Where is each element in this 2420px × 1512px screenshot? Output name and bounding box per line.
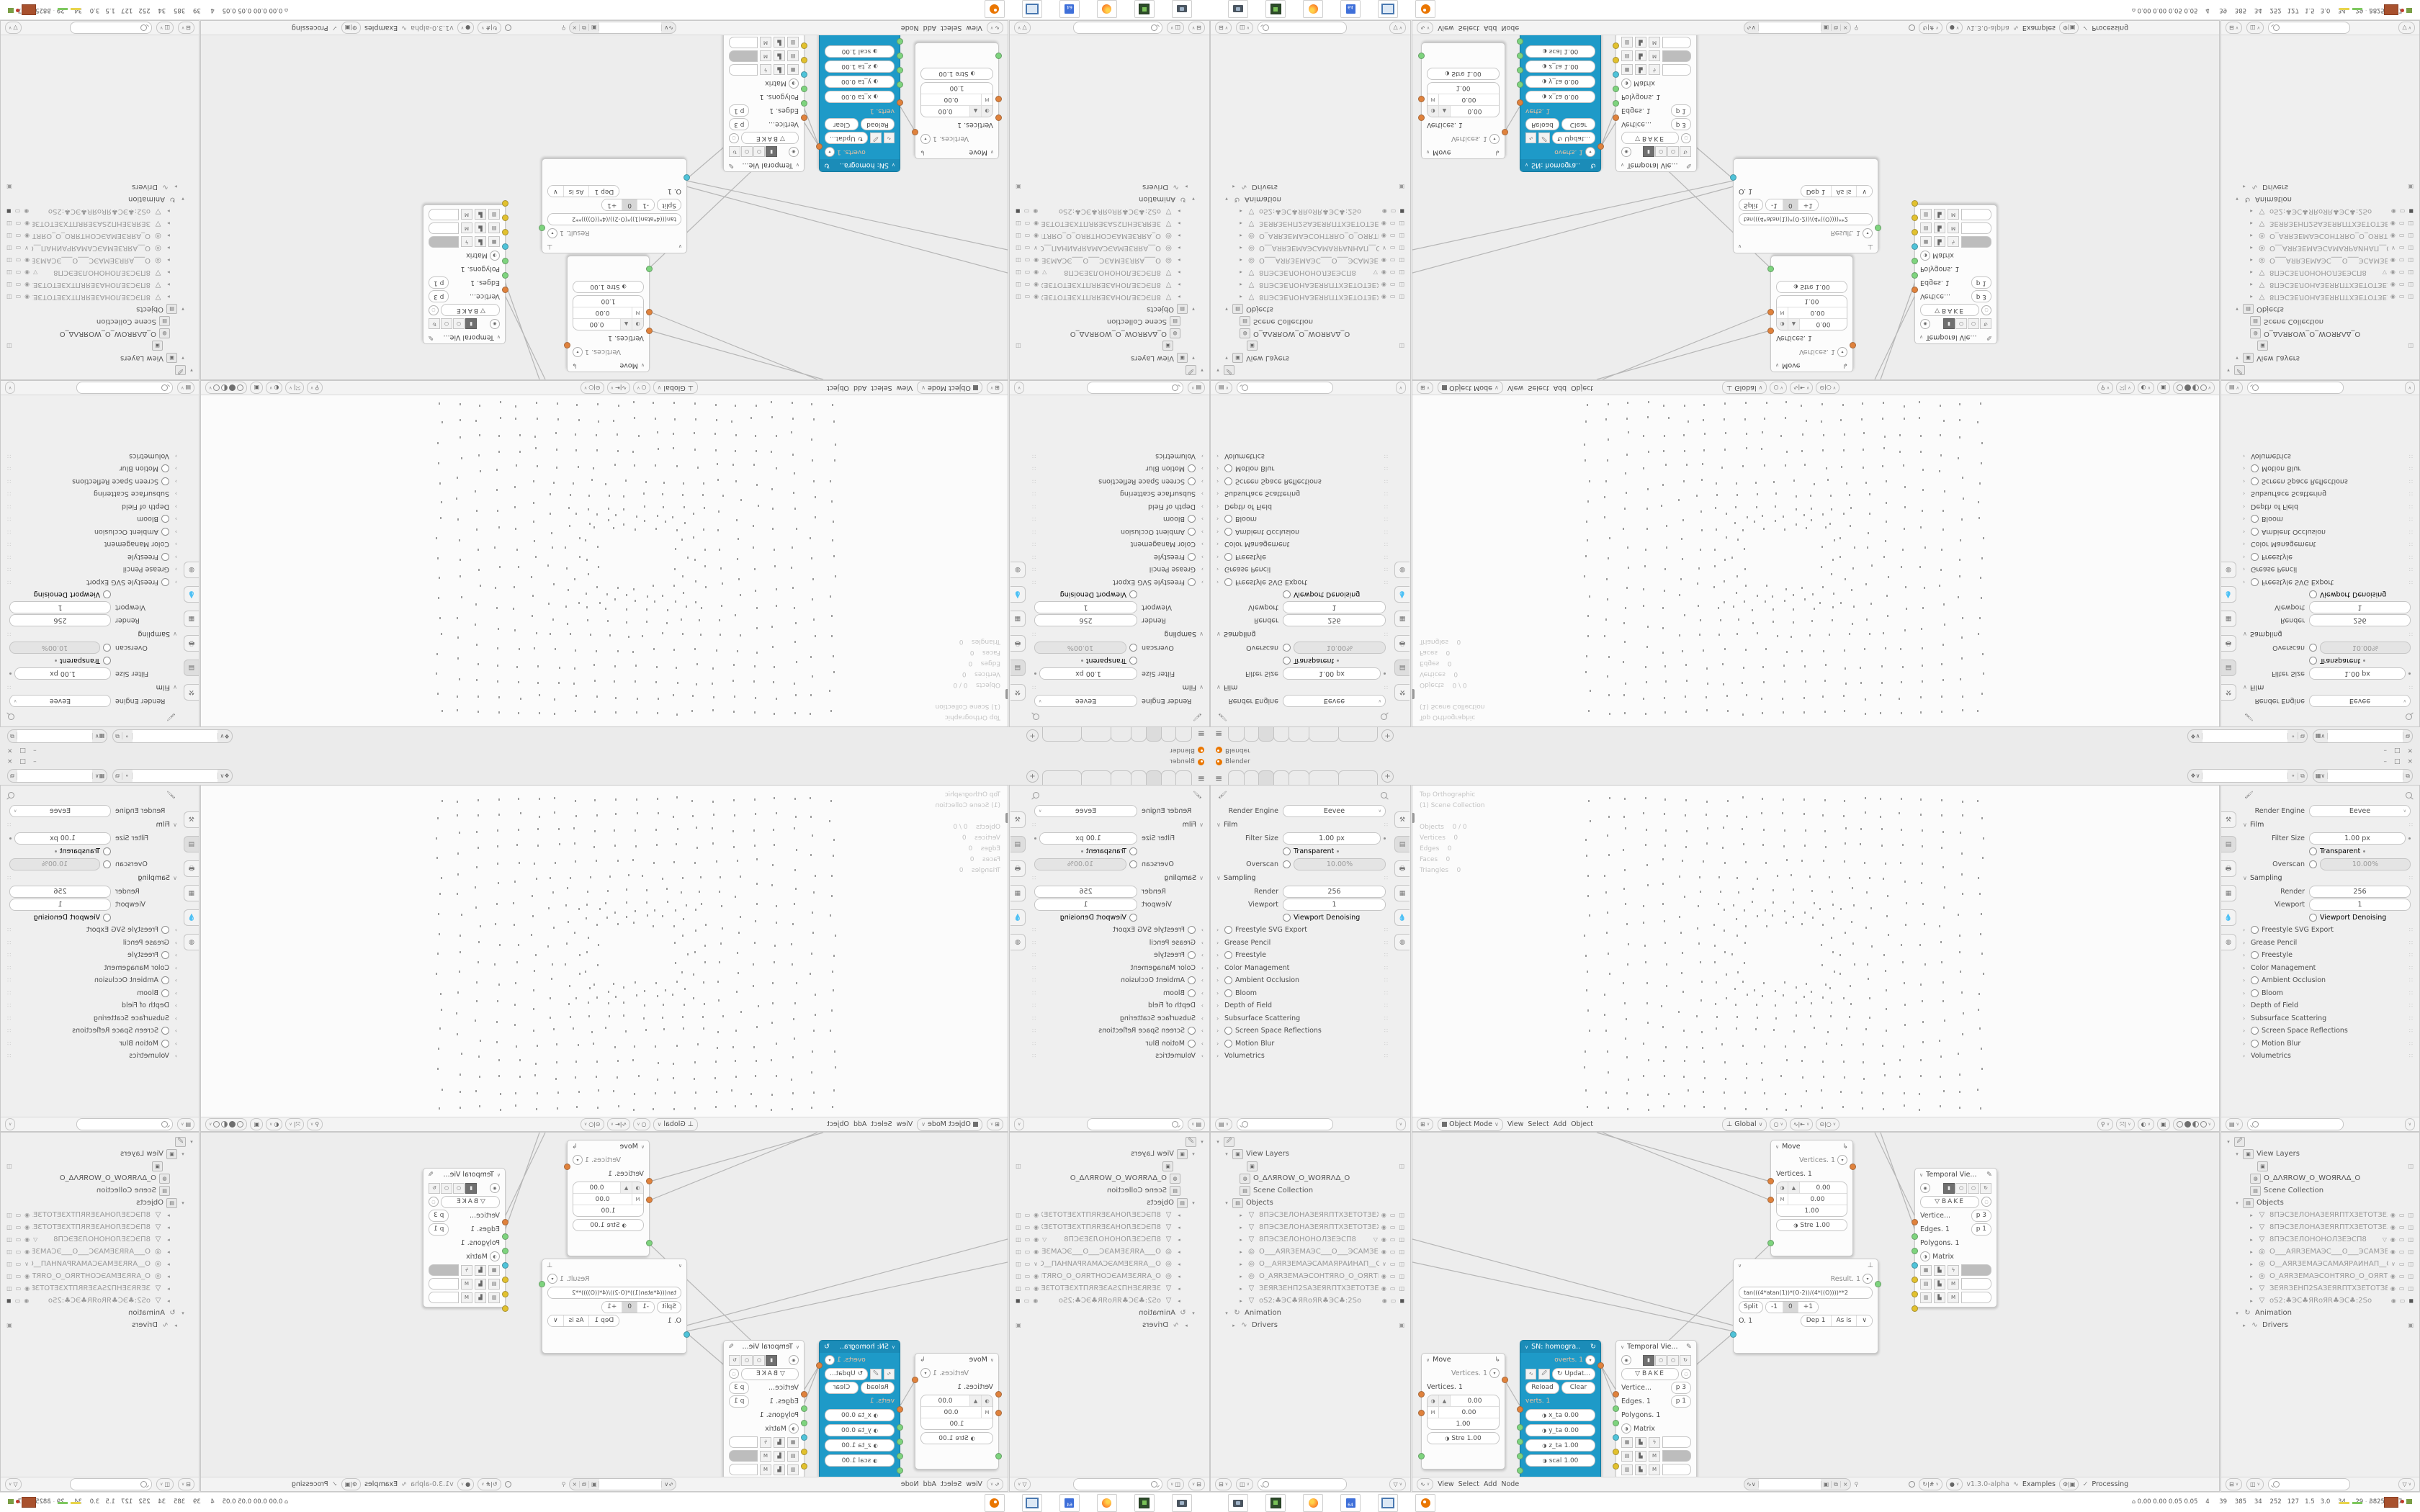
drivers-icon[interactable]: ▣ [6,1322,12,1328]
outliner-object[interactable]: ▸◎О___АЯRЗЕМАЭС___О___ЭСАМЗЕ◉▭◫ [1011,254,1206,266]
hide-icon[interactable]: ◉ [1034,1224,1039,1230]
outliner-collection[interactable]: ◍O_ΔΛЯROW_O_WOЯRΛΔ_O [2224,328,2418,340]
hide-icon[interactable]: ◉ [2390,294,2396,300]
collapsed-panel-freestyle[interactable]: ›Freestyle∷ [1,949,183,962]
outliner-drivers[interactable]: ▸∿Drivers▣ [1011,181,1206,193]
checkbox[interactable] [161,951,169,959]
value-field[interactable]: 10.00% [2320,858,2411,870]
rendered-shading-icon[interactable] [2200,1121,2207,1128]
checkbox[interactable] [1224,976,1232,984]
outliner-animation[interactable]: ▾↻Animation [2224,1307,2418,1319]
search-input[interactable] [2247,382,2344,394]
node-sn-script[interactable]: ∨SN: homogra..↻ overts. 1▾ ∿ 🖉 ↻ Updat..… [819,1340,900,1482]
disable-viewport-icon[interactable]: ▭ [16,294,22,300]
socket-in-matrix[interactable] [1613,71,1619,78]
attribute-field[interactable] [429,1264,459,1276]
snap-button[interactable]: ∿|⇤∨ [607,382,631,394]
shading-mode-group[interactable]: ∨ [205,1118,247,1130]
menu-node[interactable]: Node [901,1480,919,1488]
workspace-tab-2[interactable] [1244,727,1259,742]
outliner-object[interactable]: ▸▽8ПЭСЗЕЛОНАЗЕЯRПТХЗЕТОТЗЕХ1◉▭◫ [2224,1209,2418,1221]
taskbar-app-blender[interactable] [1415,1494,1435,1512]
render-engine-select[interactable]: Eevee∨ [1034,696,1137,708]
properties-tab-4[interactable]: 💧 [2221,586,2236,603]
display-toggle-icon[interactable]: ○ [753,1355,765,1366]
render-engine-select[interactable]: Eevee∨ [1283,696,1386,708]
checkbox[interactable] [1188,951,1196,959]
workspace-tab-2[interactable] [1161,727,1176,742]
node-expression[interactable]: ∨⊥ Result. 1▾ tan(((4*atan(1))*(O-2))/(4… [1733,1259,1878,1354]
properties-tab-4[interactable]: 💧 [184,586,199,603]
tree-name-field[interactable] [599,1479,661,1490]
attribute-field[interactable] [429,222,459,234]
outliner-object[interactable]: ▸▽8ПЭСЗЕЛОНОНОЛЗЕЭСП8▽◉▭◫ [1214,266,1409,279]
outliner-object[interactable]: ▸◎О_АЯRЗЕМАЭСОНТЯRО_О_ОЯRТНС◉▭◫ [2,230,196,242]
properties-tab-2[interactable]: 🖶 [1394,860,1410,877]
editor-type-button[interactable]: ▤∨ [177,382,194,394]
socket-in-polygons[interactable] [502,258,508,264]
value-field[interactable]: 1 [1034,602,1137,614]
viewport-3d[interactable]: Top Orthographic (1) Scene Collection Ob… [200,785,1008,1132]
collapsed-panel-depth-of-field[interactable]: ›Depth of Field∷ [1,999,183,1012]
disable-render-icon[interactable]: ◫ [6,1273,12,1279]
bake-button[interactable]: ▽ BAKE [441,305,500,317]
disable-viewport-icon[interactable]: ▭ [2399,282,2405,288]
split-button[interactable]: Split [657,199,681,212]
disable-render-icon[interactable]: ◫ [1016,1261,1021,1267]
value-field[interactable]: 1.00 px [1283,832,1381,845]
outliner-object[interactable]: ▸▽ЗЕЯRЗЕНП2SАЗЕЯRПТХЗЕТОТЗЕ)◉▭◫ [1214,217,1409,230]
outliner-object[interactable]: ▸▽8ПЭСЗЕЛОНАЗЕЯRПТХЗЕТОТЗЕХ)◉▭◫ [1214,1221,1409,1233]
value-field[interactable]: 256 [2309,886,2411,898]
collapsed-panel-screen-space-reflections[interactable]: ›Screen Space Reflections∷ [1,1025,183,1038]
section-header[interactable]: ∨ Sampling∷ [2237,870,2419,885]
workspace-tab-7[interactable] [1042,727,1082,742]
offset-segment[interactable]: -10+1 [601,1301,655,1313]
socket-in-strength[interactable] [1418,53,1425,59]
render-engine-select[interactable]: Eevee∨ [9,805,111,817]
outliner-collection[interactable]: ◍O_ΔΛЯROW_O_WOЯRΛΔ_O [1011,328,1206,340]
collapsed-panel-freestyle[interactable]: ›Freestyle∷ [1211,551,1394,564]
value-field[interactable]: 256 [9,615,111,627]
outliner-object[interactable]: ▸◎О_АЯRЗЕМАЭСОНТЯRО_О_ОЯRТНС◉▭◫ [2224,1270,2418,1282]
search-input[interactable] [2247,1118,2344,1130]
render-camera-icon[interactable]: ◫ [6,1163,12,1169]
outliner-root-row[interactable]: ▾🖉 [1214,364,1409,377]
render-camera-icon[interactable]: ◫ [2408,343,2414,349]
properties-tab-3[interactable]: ▦ [184,611,199,627]
workspace-tab-3[interactable] [1258,770,1274,785]
outliner-animation[interactable]: ▾↻Animation [2,1307,196,1319]
display-toggle-icon[interactable]: ▮ [766,1355,777,1366]
viewport-3d[interactable]: Top Orthographic (1) Scene Collection Ob… [200,380,1008,727]
disable-render-icon[interactable]: ◫ [2408,282,2414,288]
expand-icon[interactable]: ∨ [24,245,29,251]
disable-viewport-icon[interactable]: ▭ [16,282,22,288]
attribute-field[interactable] [1961,1264,1991,1276]
hide-icon[interactable]: ◉ [1381,1248,1386,1255]
workspace-tab-3[interactable] [1258,727,1274,742]
display-toggle-icon[interactable]: ○ [1667,1355,1679,1366]
properties-tab-2[interactable]: 🖶 [184,635,199,652]
disable-render-icon[interactable]: ◫ [1016,1236,1021,1243]
taskbar-app-screenshot-tool[interactable] [1228,0,1248,18]
collapsed-panel-grease-pencil[interactable]: ›Grease Pencil∷ [1211,937,1394,950]
outliner-object[interactable]: ▸▽оS2:♣ЭС♣ЯRоЯR♣ЭС♣:2Sо◉▭◼ [2224,1295,2418,1307]
attribute-field[interactable] [429,236,459,248]
value-field[interactable]: 10.00% [9,858,100,870]
display-mode-button[interactable]: ⊟∨ [1188,22,1205,34]
checkbox[interactable] [2251,553,2259,561]
hide-icon[interactable]: ◉ [24,1212,30,1218]
socket-in-verts[interactable] [897,99,903,106]
socket-in-attr2[interactable] [801,1463,807,1470]
disable-render-icon[interactable]: ◫ [1399,1248,1404,1255]
shield-icon[interactable]: ▣ [589,24,600,31]
socket-in-yta[interactable] [1517,1439,1523,1445]
settings-button[interactable]: ⚙|▣ [341,1478,361,1490]
workspace-tab-3[interactable] [1146,727,1162,742]
disable-render-icon[interactable]: ◫ [2408,1212,2414,1218]
collapsed-panel-color-management[interactable]: ›Color Management∷ [1,538,183,551]
collapsed-panel-ambient-occlusion[interactable]: ›Ambient Occlusion∷ [1026,526,1209,539]
outliner-view-layer-item[interactable]: ▣◫ [1214,1160,1409,1172]
disable-viewport-icon[interactable]: ▭ [16,269,22,276]
hide-icon[interactable]: ◉ [24,257,30,264]
socket-in-strength[interactable] [1767,1240,1774,1246]
outliner-view-layers[interactable]: ▾▣View Layers [1011,352,1206,364]
value-field[interactable]: 1 [2309,602,2411,614]
taskbar-app-floppy-64[interactable]: 64 [1059,0,1080,18]
snap-target-button[interactable]: ○∨ [633,382,650,394]
socket-in-verts[interactable] [1517,99,1523,106]
section-header[interactable]: ∨ Film∷ [1211,817,1394,832]
outliner-drivers[interactable]: ▸∿Drivers▣ [2,181,196,193]
collapsed-panel-ambient-occlusion[interactable]: ›Ambient Occlusion∷ [1,526,183,539]
pin-circle-icon[interactable] [505,24,511,31]
mesh-data-icon[interactable]: ▽ [1373,1236,1378,1243]
disable-render-icon[interactable]: ◫ [2408,294,2414,300]
section-header[interactable]: ∨ Sampling∷ [1,870,183,885]
view-layer-name-field[interactable] [17,770,92,782]
collapsed-panel-depth-of-field[interactable]: ›Depth of Field∷ [1211,500,1394,513]
socket-in-matrix[interactable] [1613,1434,1619,1441]
sn-param-scal[interactable]: ◑scal1.00 [825,1454,895,1467]
sn-param-z_ta[interactable]: ◑z_ta1.00 [825,60,895,73]
socket-out-result[interactable] [539,225,545,231]
taskbar-app-blender[interactable] [985,1494,1005,1512]
minimize-button[interactable]: – [2383,758,2387,765]
collapsed-panel-freestyle-svg-export[interactable]: ›Freestyle SVG Export∷ [1026,924,1209,937]
outliner-object[interactable]: ▸▽8ПЭСЗЕЛОНАЗЕЯRПТХЗЕТОТЗЕХ1◉▭◫ [2224,291,2418,303]
socket-out-vertices[interactable] [912,1377,918,1383]
outliner-object[interactable]: ▸◎О__АЯRЗЕМАЭСАМАЯРАИНАП__О_∨▭◫ [1214,242,1409,254]
outliner-object[interactable]: ▸▽8ПЭСЗЕЛОНАЗЕЯRПТХЗЕТОТЗЕХ)◉▭◫ [1214,279,1409,291]
socket-in-attr2[interactable] [1613,1463,1619,1470]
wireframe-shading-icon[interactable] [237,384,243,391]
outliner-drivers[interactable]: ▸∿Drivers▣ [1011,1319,1206,1331]
drivers-icon[interactable]: ▣ [1016,184,1021,190]
socket-in-attr1[interactable] [1912,1277,1918,1283]
checkbox[interactable] [1224,1040,1232,1048]
scene-selector[interactable]: ❖∨ ⚬ ⧉ [112,729,232,743]
collapsed-panel-freestyle-svg-export[interactable]: ›Freestyle SVG Export∷ [1,924,183,937]
outliner-object[interactable]: ▸◎О___АЯRЗЕМАЭС___О___ЭСАМЗЕ◉▭◫ [1011,1246,1206,1258]
proportional-edit-button[interactable]: ⊙|○∨ [581,382,604,394]
disable-render-icon[interactable]: ◫ [2408,1261,2414,1267]
socket-in-zta[interactable] [897,1453,903,1459]
value-field[interactable]: 1.00 px [1283,668,1381,680]
view-layer-selector[interactable]: ▦∨ ⧉ [2313,769,2413,783]
node-move[interactable]: ∨Move↳ Vertices. 1▾ Vertices. 1 ◑▲0.00 M… [1421,1353,1505,1470]
attribute-field[interactable] [729,37,758,48]
socket-in-o[interactable] [684,174,690,181]
checkbox[interactable] [103,914,111,922]
hide-icon[interactable]: ◉ [1381,1285,1386,1292]
hide-icon[interactable]: ◉ [2390,1212,2396,1218]
preview-icon[interactable]: ◉ [490,1183,500,1193]
shading-mode-group[interactable]: ∨ [205,382,247,394]
bake-button[interactable]: ▽ BAKE [1621,132,1679,145]
disable-render-icon[interactable]: ◫ [1016,233,1021,239]
options-button[interactable]: ∨ [1014,1118,1024,1130]
node-tree-selector[interactable]: ∿∨ ▣ ⧉ × [569,22,676,34]
offset-segment[interactable]: -10+1 [1765,199,1819,212]
checkbox[interactable] [1188,477,1196,485]
hide-icon[interactable]: ◉ [24,1297,29,1304]
editor-type-button[interactable]: ∿∨ [1417,1478,1433,1490]
menu-icon[interactable]: ≡ [1215,773,1222,783]
menu-object[interactable]: Object [1571,1120,1593,1128]
search-input[interactable] [1073,1478,1162,1490]
socket-in-vertices[interactable] [1613,114,1619,121]
value-field[interactable]: 1.00 px [14,668,111,680]
attribute-field[interactable] [429,1278,459,1290]
outliner-collection[interactable]: ◍O_ΔΛЯROW_O_WOЯRΛΔ_O [1214,1172,1409,1184]
disable-render-icon[interactable]: ◫ [6,1285,12,1292]
menu-add[interactable]: Add [853,1120,866,1128]
bake-button[interactable]: ▽ BAKE [1621,1368,1679,1380]
taskbar-app-camera-app[interactable] [1134,0,1155,18]
mesh-data-icon[interactable]: ▽ [33,1236,37,1243]
checkbox[interactable] [1283,860,1291,868]
render-camera-icon[interactable]: ◫ [1399,1163,1404,1169]
disable-render-icon[interactable]: ◫ [1399,257,1404,264]
outliner-object[interactable]: ▸▽оS2:♣ЭС♣ЯRоЯR♣ЭС♣:2Sо◉▭◼ [2,1295,196,1307]
disable-render-icon[interactable]: ◫ [1016,282,1021,288]
outliner-object[interactable]: ▸▽8ПЭСЗЕЛОНАЗЕЯRПТХЗЕТОТЗЕХ1◉▭◫ [2,1209,196,1221]
drivers-icon[interactable]: ▣ [1399,1322,1404,1328]
outliner-animation[interactable]: ▾↻Animation [1214,1307,1409,1319]
disable-render-icon[interactable]: ◫ [2408,245,2414,251]
mesh-data-icon[interactable]: ▽ [1373,269,1378,276]
menu-icon[interactable]: ≡ [1198,773,1205,783]
checkbox[interactable] [2251,578,2259,586]
workspace-tab-7[interactable] [1338,770,1378,785]
hide-icon[interactable]: ◉ [1034,1273,1039,1279]
disable-viewport-icon[interactable]: ▭ [1025,1261,1031,1267]
checkbox[interactable] [2251,976,2259,984]
disable-viewport-icon[interactable]: ▭ [1025,257,1031,264]
workspace-tab-2[interactable] [1244,770,1259,785]
disable-render-icon[interactable]: ◼ [1016,208,1021,215]
value-field[interactable]: 256 [1034,886,1137,898]
properties-tab-1[interactable]: ▤ [1010,836,1026,852]
disable-render-icon[interactable]: ◫ [6,1261,12,1267]
taskbar-app-firefox[interactable] [1303,1494,1323,1512]
socket-in-attr1[interactable] [801,57,807,63]
disable-render-icon[interactable]: ◫ [6,1212,12,1218]
checkbox[interactable] [1188,976,1196,984]
node-temporal-viewer[interactable]: ∨Temporal Vie...✎◉▮○○↻▽ BAKE◌Vertice...p… [1914,1168,1997,1308]
collapsed-panel-subsurface-scattering[interactable]: ›Subsurface Scattering∷ [1026,1012,1209,1025]
taskbar-app-firefox[interactable] [1097,0,1117,18]
display-toggle-icon[interactable]: ▮ [1943,1183,1955,1194]
hide-icon[interactable]: ◉ [1381,220,1386,227]
display-mode-button[interactable]: ⊟∨ [2226,1478,2242,1490]
disable-render-icon[interactable]: ◫ [2408,233,2414,239]
restore-button[interactable]: □ [20,758,27,765]
outliner-object[interactable]: ▸▽оS2:♣ЭС♣ЯRоЯR♣ЭС♣:2Sо◉▭◼ [1214,205,1409,217]
expand-icon[interactable]: ∨ [1034,1261,1038,1267]
socket-in-polygons[interactable] [1613,1420,1619,1426]
hide-icon[interactable]: ◉ [24,1236,30,1243]
outliner-object[interactable]: ▸▽8ПЭСЗЕЛОНАЗЕЯRПТХЗЕТОТЗЕХ1◉▭◫ [1214,291,1409,303]
socket-in-scal[interactable] [897,38,903,45]
checkbox[interactable] [1224,578,1232,586]
menu-select[interactable]: Select [1458,1480,1479,1488]
outliner-drivers[interactable]: ▸∿Drivers▣ [2,1319,196,1331]
checkbox[interactable] [1224,528,1232,536]
filter-id-button[interactable]: ◫∨ [1236,22,1253,34]
value-field[interactable]: 256 [1283,615,1386,627]
profiling-button[interactable]: ●∨ [457,1478,474,1490]
transform-orientation-select[interactable]: ⊥ Global∨ [1722,382,1767,395]
workspace-tab-1[interactable] [1175,727,1192,742]
socket-in-matrix[interactable] [1912,243,1918,250]
hide-icon[interactable]: ◉ [1381,269,1386,276]
disable-viewport-icon[interactable]: ▭ [1390,269,1396,276]
disable-viewport-icon[interactable]: ▭ [2399,233,2405,239]
collapsed-panel-subsurface-scattering[interactable]: ›Subsurface Scattering∷ [1211,487,1394,500]
properties-tab-0[interactable]: ⚒ [1394,811,1410,828]
outliner-object[interactable]: ▸◎О_АЯRЗЕМАЭСОНТЯRО_О_ОЯRТНС◉▭◫ [1011,1270,1206,1282]
checkbox[interactable] [2309,914,2317,922]
sn-param-x_ta[interactable]: ◑x_ta0.00 [825,91,895,103]
sn-param-z_ta[interactable]: ◑z_ta1.00 [1525,60,1595,73]
outliner-scene-collection[interactable]: ▤Scene Collection [2224,315,2418,328]
filter-button[interactable]: ▽∨ [2398,22,2415,34]
outliner-object[interactable]: ▸▽8ПЭСЗЕЛОНАЗЕЯRПТХЗЕТОТЗЕХ)◉▭◫ [2,279,196,291]
outliner-view-layers[interactable]: ▾▣View Layers [2224,352,2418,364]
outliner-root-row[interactable]: ▾🖉 [2,1135,196,1148]
render-engine-select[interactable]: Eevee∨ [1034,805,1137,817]
hide-icon[interactable]: ◉ [24,282,30,288]
minimize-button[interactable]: – [33,758,37,765]
disable-viewport-icon[interactable]: ▭ [1025,1248,1031,1255]
shield-icon[interactable]: ▣ [589,1481,600,1488]
collapsed-panel-color-management[interactable]: ›Color Management∷ [1211,538,1394,551]
menu-view[interactable]: View [966,1480,982,1488]
socket-in-scal[interactable] [1517,38,1523,45]
mesh-data-icon[interactable]: ▽ [2383,269,2387,276]
collapsed-panel-motion-blur[interactable]: ›Motion Blur∷ [1026,1038,1209,1050]
disable-viewport-icon[interactable]: ▭ [16,1273,22,1279]
outliner-object[interactable]: ▸▽ЗЕЯRЗЕНП2SАЗЕЯRПТХЗЕТОТЗЕ)◉▭◫ [2,217,196,230]
outliner-object[interactable]: ▸▽8ПЭСЗЕЛОНАЗЕЯRПТХЗЕТОТЗЕХ1◉▭◫ [1011,1209,1206,1221]
checkbox[interactable] [161,989,169,997]
depth-mode-segment[interactable]: Dep 1As is∨ [547,186,619,198]
expand-icon[interactable]: ∨ [1034,245,1038,251]
clear-button[interactable]: Clear [825,119,859,131]
expression-field[interactable]: tan(((4*atan(1))*(O-2))/(4*((O))))**2 [1739,213,1873,225]
options-button[interactable]: ∨ [2405,382,2415,394]
snap-button[interactable]: ∿|⇤∨ [1790,382,1814,394]
disable-render-icon[interactable]: ◫ [1399,269,1404,276]
properties-tab-4[interactable]: 💧 [184,909,199,926]
disable-viewport-icon[interactable]: ▭ [16,233,22,239]
socket-in-vertices[interactable] [1418,114,1425,121]
socket-in-vertices[interactable] [646,1178,653,1184]
socket-in-vector[interactable] [1767,1197,1774,1203]
drivers-icon[interactable]: ▣ [1399,184,1404,190]
outliner-animation[interactable]: ▾↻Animation [1011,193,1206,205]
annotate-button[interactable]: ⚲∨ [2097,1118,2113,1130]
attribute-field[interactable] [729,1436,758,1448]
socket-in-vertices[interactable] [1912,1219,1918,1225]
view-layer-name-field[interactable] [2328,730,2403,742]
close-button[interactable]: × [7,747,13,754]
section-header[interactable]: ∨ Film∷ [1,817,183,832]
sn-param-y_ta[interactable]: ◑y_ta0.00 [1525,76,1595,88]
collapsed-panel-volumetrics[interactable]: ›Volumetrics∷ [1026,450,1209,463]
taskbar-app-floppy-64[interactable]: 64 [1340,1494,1361,1512]
script-edit-icon[interactable]: 🖉 [1538,1369,1549,1380]
outliner-view-layers[interactable]: ▾▣View Layers [2224,1148,2418,1160]
outliner-object[interactable]: ▸▽8ПЭСЗЕЛОНАЗЕЯRПТХЗЕТОТЗЕХ1◉▭◫ [1011,291,1206,303]
socket-in-attr1[interactable] [1613,57,1619,63]
mesh-data-icon[interactable]: ▽ [1042,269,1047,276]
display-toggle-icon[interactable]: ↻ [429,319,440,330]
node-tree-selector[interactable]: ∿∨ ▣ ⧉ × [1744,22,1851,34]
outliner-object[interactable]: ▸◎О___АЯRЗЕМАЭС___О___ЭСАМЗЕ◉▭◫ [2224,1246,2418,1258]
socket-out-overts[interactable] [1597,1362,1604,1369]
material-shading-icon[interactable] [2192,384,2199,391]
shading-mode-group[interactable]: ∨ [2173,382,2215,394]
checkbox[interactable] [1224,926,1232,934]
display-toggle-icon[interactable]: ○ [741,147,753,158]
search-input[interactable] [2268,22,2350,34]
attribute-field[interactable] [1961,1278,1991,1290]
node-expression[interactable]: ∨⊥ Result. 1▾ tan(((4*atan(1))*(O-2))/(4… [1733,158,1878,253]
display-toggle-icon[interactable]: ↻ [1980,1183,1991,1194]
filter-id-button[interactable]: ◫∨ [2246,1478,2264,1490]
socket-in-yta[interactable] [897,1439,903,1445]
outliner-objects-group[interactable]: ▾▤Objects [1011,1197,1206,1209]
collapsed-panel-screen-space-reflections[interactable]: ›Screen Space Reflections∷ [1026,475,1209,488]
checkbox[interactable] [103,657,111,665]
search-input[interactable] [1258,1478,1347,1490]
hide-icon[interactable]: ◉ [2390,1248,2396,1255]
disable-render-icon[interactable]: ◼ [2408,208,2414,215]
tree-name-field[interactable] [1759,22,1821,33]
search-input[interactable] [1073,22,1162,34]
value-field[interactable]: 10.00% [1294,858,1386,870]
update-button[interactable]: ↻ Updat... [1552,1368,1595,1380]
mesh-data-icon[interactable]: ▽ [2383,1236,2387,1243]
section-header[interactable]: ∨ Film∷ [1026,817,1209,832]
collapsed-panel-ambient-occlusion[interactable]: ›Ambient Occlusion∷ [2237,974,2419,987]
